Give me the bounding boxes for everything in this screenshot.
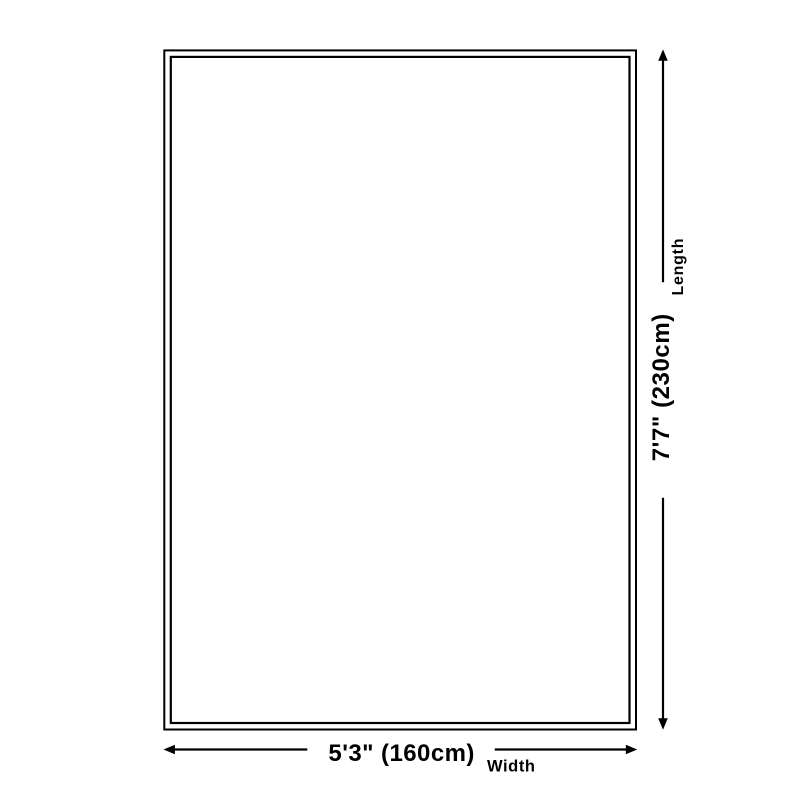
svg-text:5'3" (160cm): 5'3" (160cm) <box>328 740 474 767</box>
svg-text:Width: Width <box>487 758 535 776</box>
svg-text:7'7" (230cm): 7'7" (230cm) <box>648 314 675 462</box>
svg-text:Length: Length <box>670 239 687 296</box>
